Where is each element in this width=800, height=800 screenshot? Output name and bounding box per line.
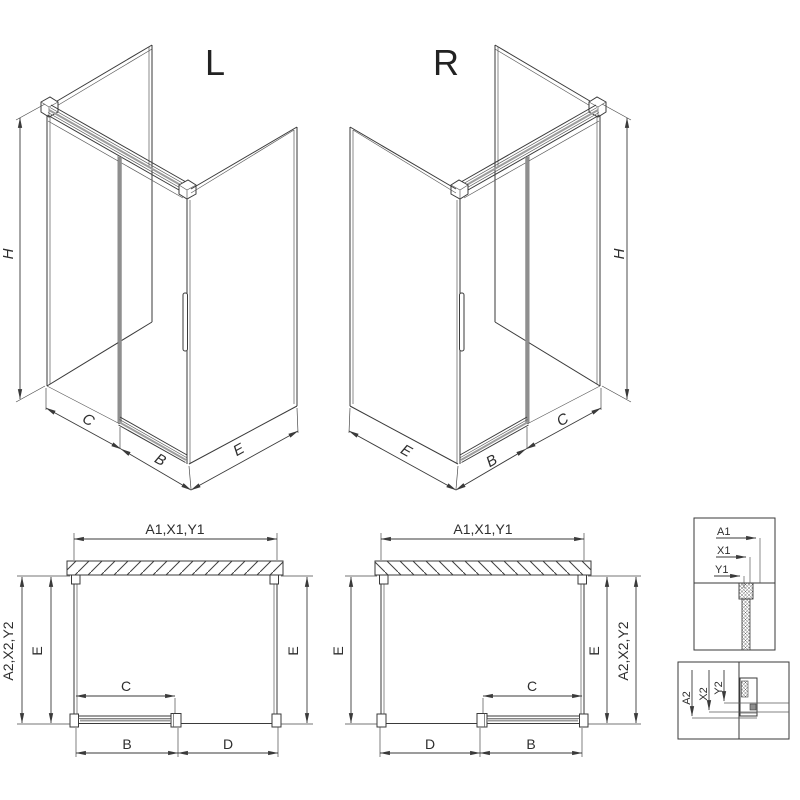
drawing-canvas: L H C B E R H E B C A1,X1,Y1 A2,X2,Y2 E … (0, 0, 800, 800)
plan-right-width-label: A1,X1,Y1 (453, 521, 512, 537)
dim-label-fixed-right: C (554, 410, 572, 430)
plan-left-door-label: B (122, 736, 131, 752)
plan-view-right: A1,X1,Y1 E C D B E A2,X2,Y2 (330, 521, 641, 757)
plan-left-depth-inner-label: E (29, 646, 45, 655)
detail-label-x1: X1 (717, 545, 730, 557)
plan-right-depth-outer-label: A2,X2,Y2 (615, 621, 631, 680)
detail-label-x2: X2 (698, 687, 710, 700)
plan-right-depth-left-label: E (330, 646, 346, 655)
plan-right-depth-inner-label: E (586, 646, 602, 655)
detail-box-bottom (678, 662, 789, 739)
plan-view-left: A1,X1,Y1 A2,X2,Y2 E E C B D (0, 521, 313, 757)
shower-enclosure-technical-drawing: L H C B E R H E B C A1,X1,Y1 A2,X2,Y2 E … (0, 0, 800, 800)
dim-label-height-right: H (611, 248, 628, 259)
plan-left-depth-right-label: E (285, 646, 301, 655)
glass-panel-section (742, 599, 750, 650)
detail-label-a2: A2 (681, 691, 693, 704)
rail-roller (750, 704, 756, 710)
wall-profile-detail: A1 X1 Y1 (694, 518, 775, 650)
plan-left-opening-label: D (223, 736, 233, 752)
dim-label-door-left: B (152, 450, 169, 470)
dim-label-side-left: E (230, 440, 248, 460)
iso-view-right: R H E B C (349, 42, 631, 490)
dim-label-door-right: B (483, 451, 500, 471)
wall-mount-profile-section (739, 583, 753, 599)
plan-right-opening-label: D (425, 736, 435, 752)
plan-right-door-label: B (526, 736, 535, 752)
iso-view-left: L H C B E (0, 42, 298, 490)
plan-left-width-label: A1,X1,Y1 (145, 521, 204, 537)
dim-label-height-left: H (0, 248, 17, 259)
detail-label-y2: Y2 (713, 681, 725, 694)
plan-right-fixed-label: C (527, 678, 537, 694)
detail-label-y1: Y1 (715, 564, 728, 576)
detail-label-a1: A1 (717, 526, 730, 538)
plan-left-depth-outer-label: A2,X2,Y2 (0, 621, 16, 680)
plan-left-fixed-label: C (121, 678, 131, 694)
view-label-left: L (205, 42, 225, 83)
floor-profile-detail: A2 X2 Y2 (678, 662, 789, 739)
dim-label-side-right: E (398, 441, 416, 461)
view-label-right: R (433, 42, 459, 83)
